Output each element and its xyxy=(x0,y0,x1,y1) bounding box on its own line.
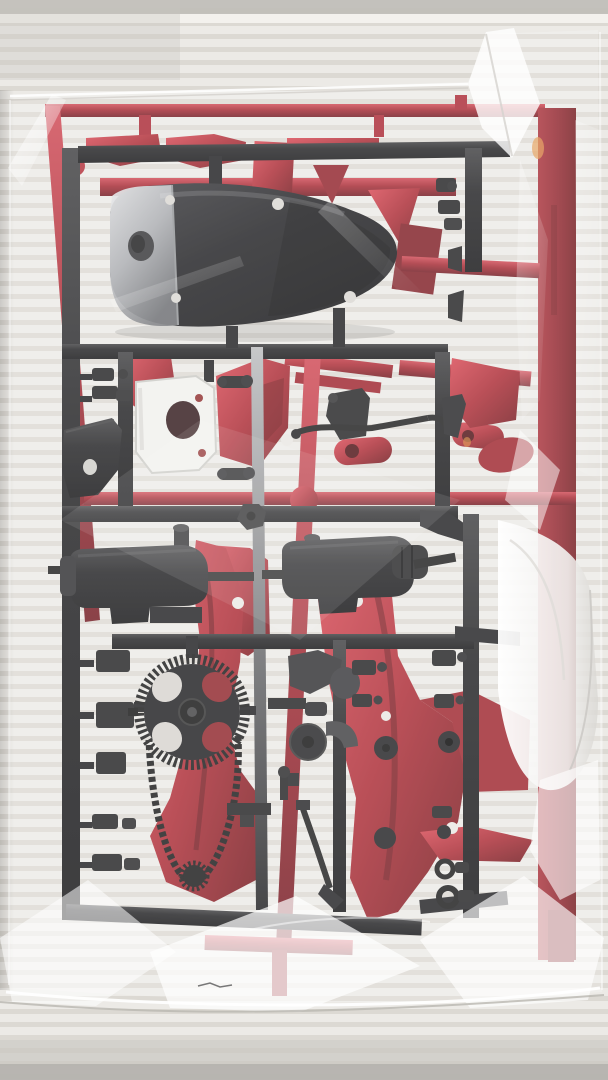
surface-corner-shade xyxy=(0,0,180,80)
tape-speck xyxy=(532,137,544,159)
plastic-bag xyxy=(0,28,604,1012)
tape-speck xyxy=(463,437,471,447)
surface-bottom-ridge xyxy=(0,1064,608,1080)
bag-wrinkle xyxy=(575,120,600,480)
photo-model-kit-sprues: Photograph of an unopened clear plastic … xyxy=(0,0,608,1080)
bag-left-edge xyxy=(9,100,10,985)
